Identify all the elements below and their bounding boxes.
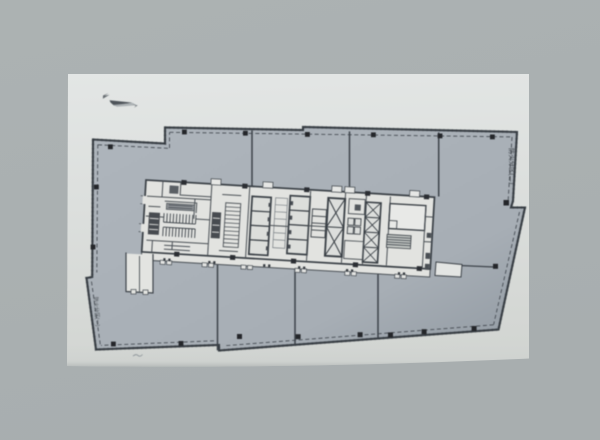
svg-text:防火分区(二): 防火分区(二) (507, 148, 516, 185)
